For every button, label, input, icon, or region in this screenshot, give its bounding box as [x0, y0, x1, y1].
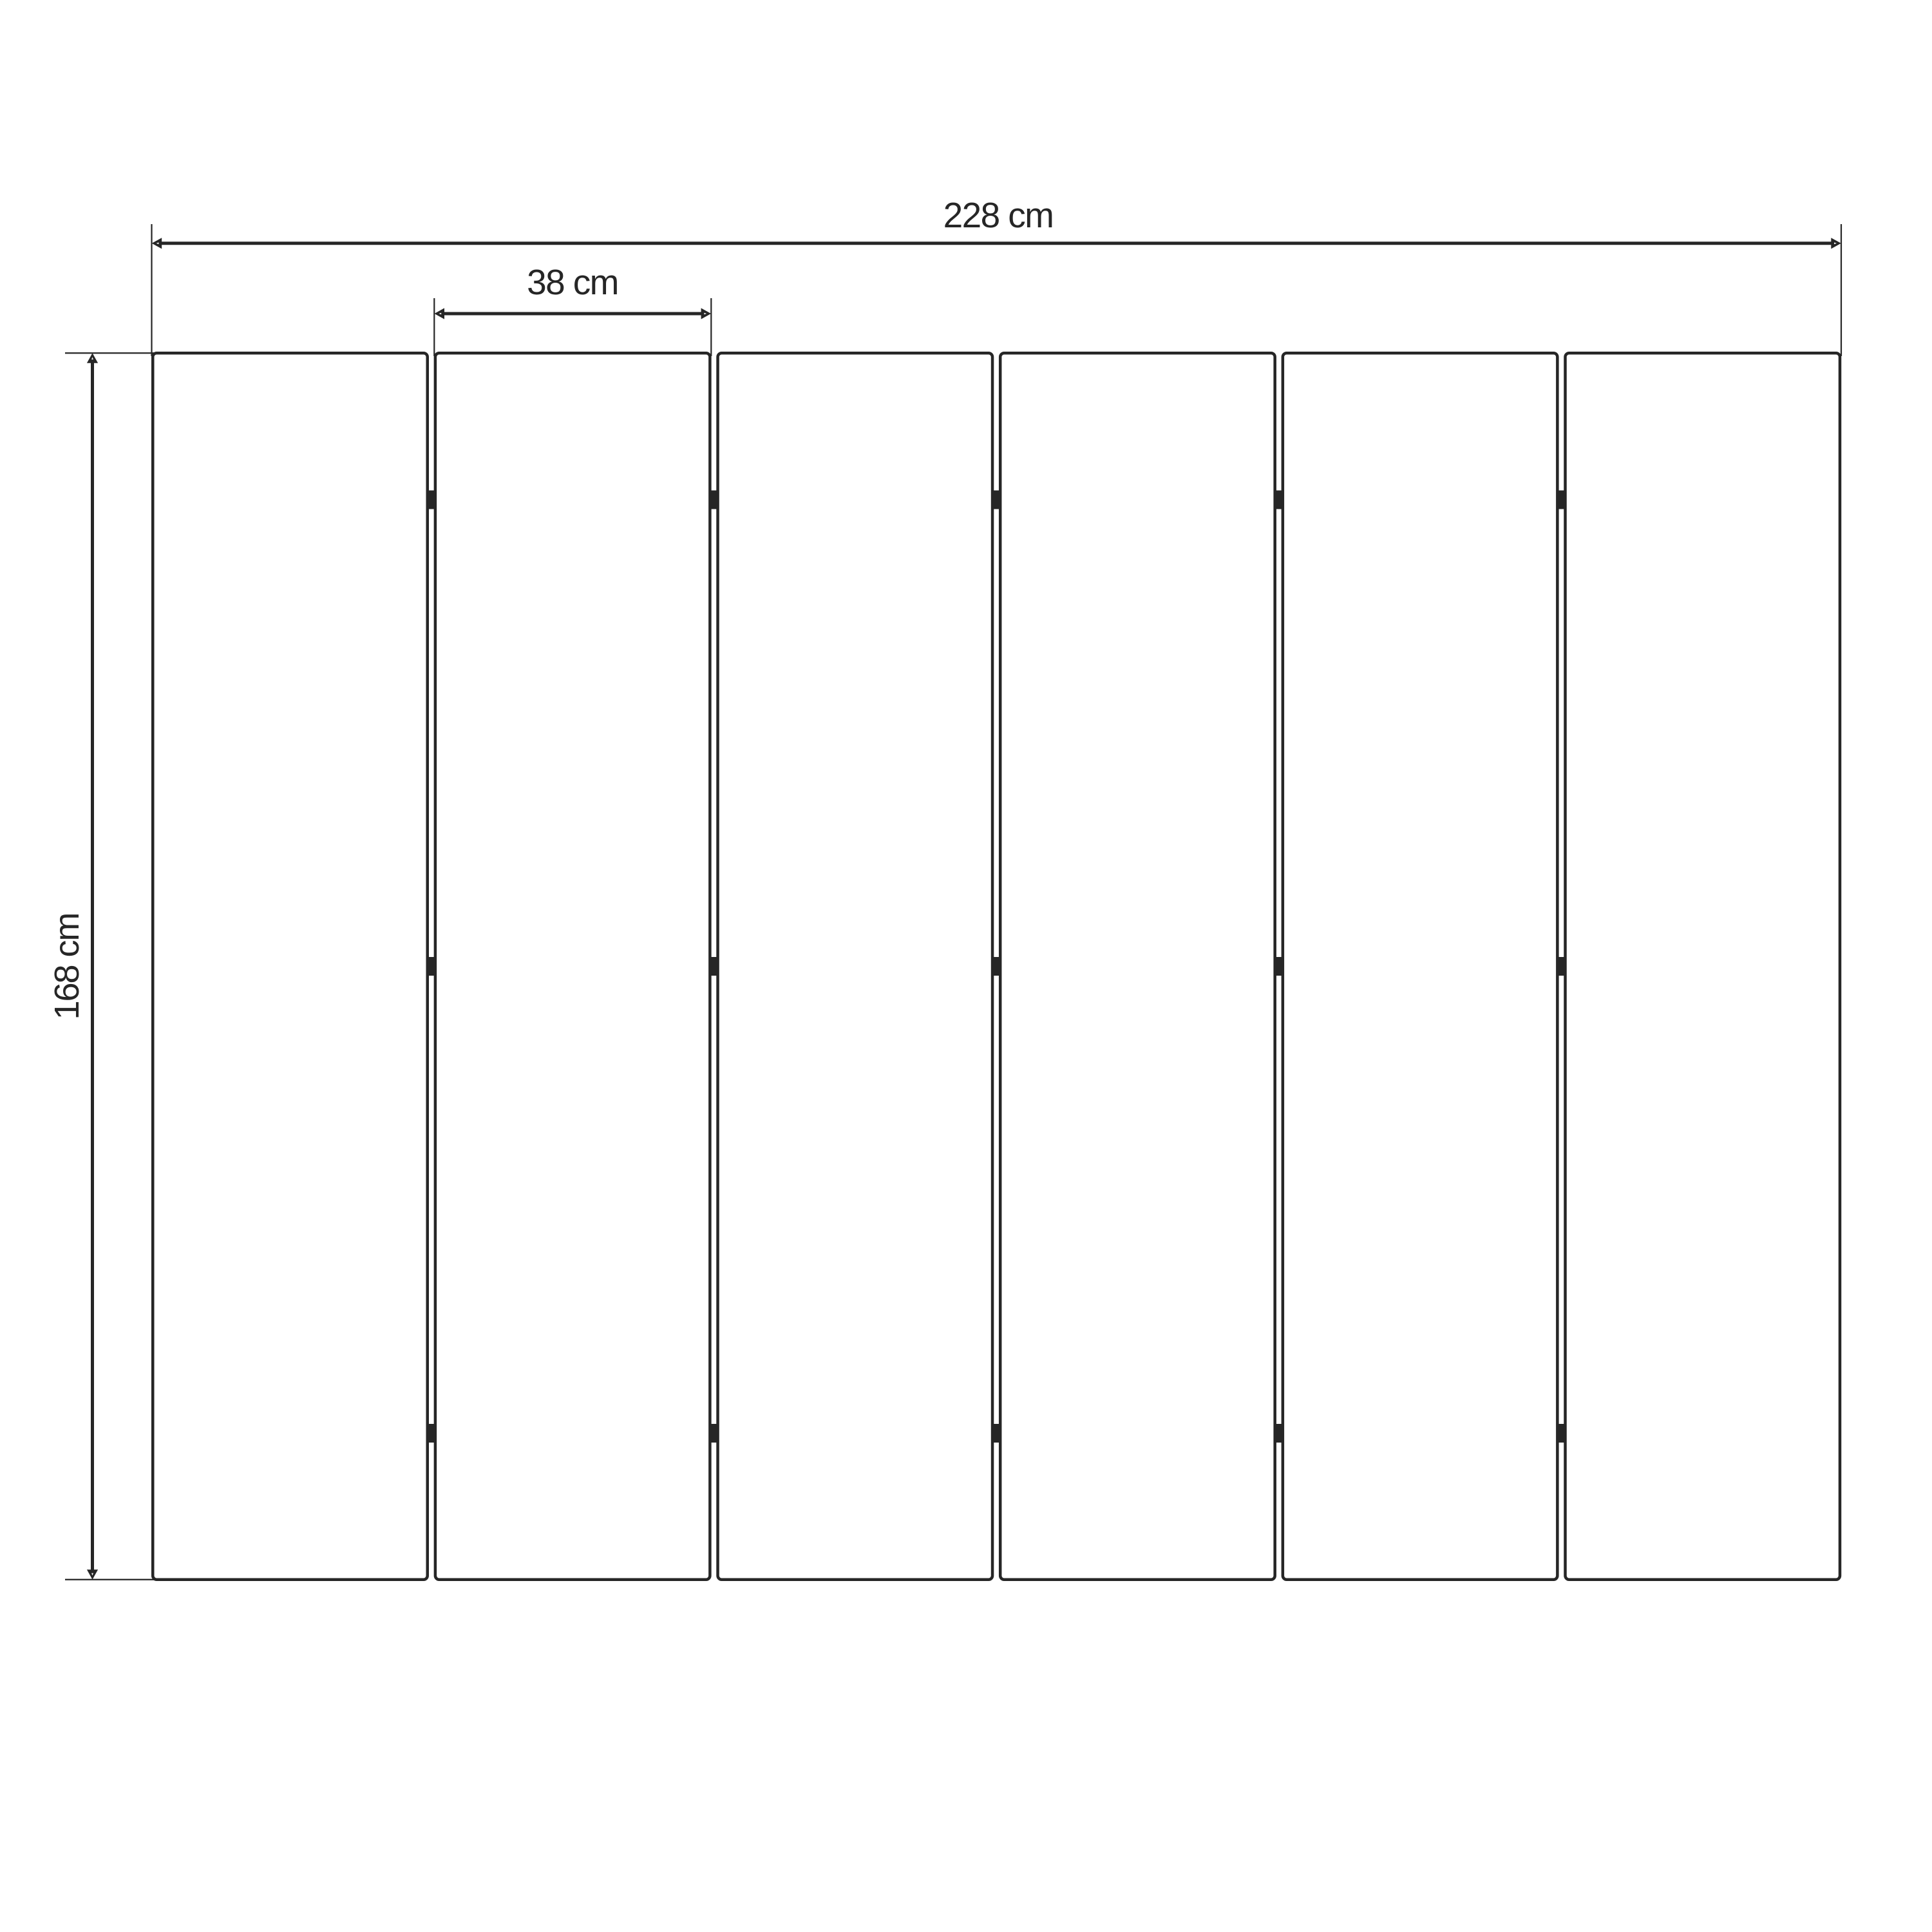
svg-text:228 cm: 228 cm	[943, 195, 1054, 235]
svg-text:168 cm: 168 cm	[48, 913, 86, 1019]
svg-text:38 cm: 38 cm	[527, 262, 618, 302]
